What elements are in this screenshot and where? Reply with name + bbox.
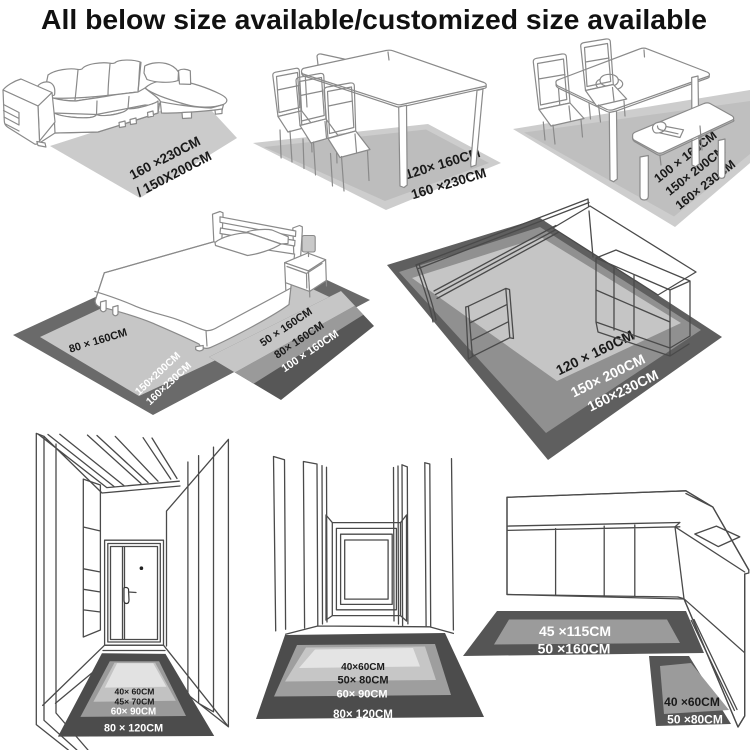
svg-text:All below size available/custo: All below size available/customized size…	[41, 4, 707, 35]
svg-text:45 ×115CM: 45 ×115CM	[539, 623, 611, 639]
svg-text:80× 120CM: 80× 120CM	[333, 709, 393, 721]
svg-text:80 × 120CM: 80 × 120CM	[104, 723, 163, 735]
svg-text:40 ×60CM: 40 ×60CM	[664, 695, 720, 709]
svg-text:50 ×80CM: 50 ×80CM	[667, 713, 723, 727]
svg-text:40×60CM: 40×60CM	[341, 662, 385, 673]
svg-text:50× 80CM: 50× 80CM	[337, 675, 388, 687]
svg-text:45× 70CM: 45× 70CM	[115, 697, 155, 707]
svg-text:60× 90CM: 60× 90CM	[336, 689, 387, 701]
svg-text:50 ×160CM: 50 ×160CM	[538, 641, 611, 657]
svg-text:40× 60CM: 40× 60CM	[115, 687, 155, 697]
svg-text:60× 90CM: 60× 90CM	[111, 707, 156, 718]
